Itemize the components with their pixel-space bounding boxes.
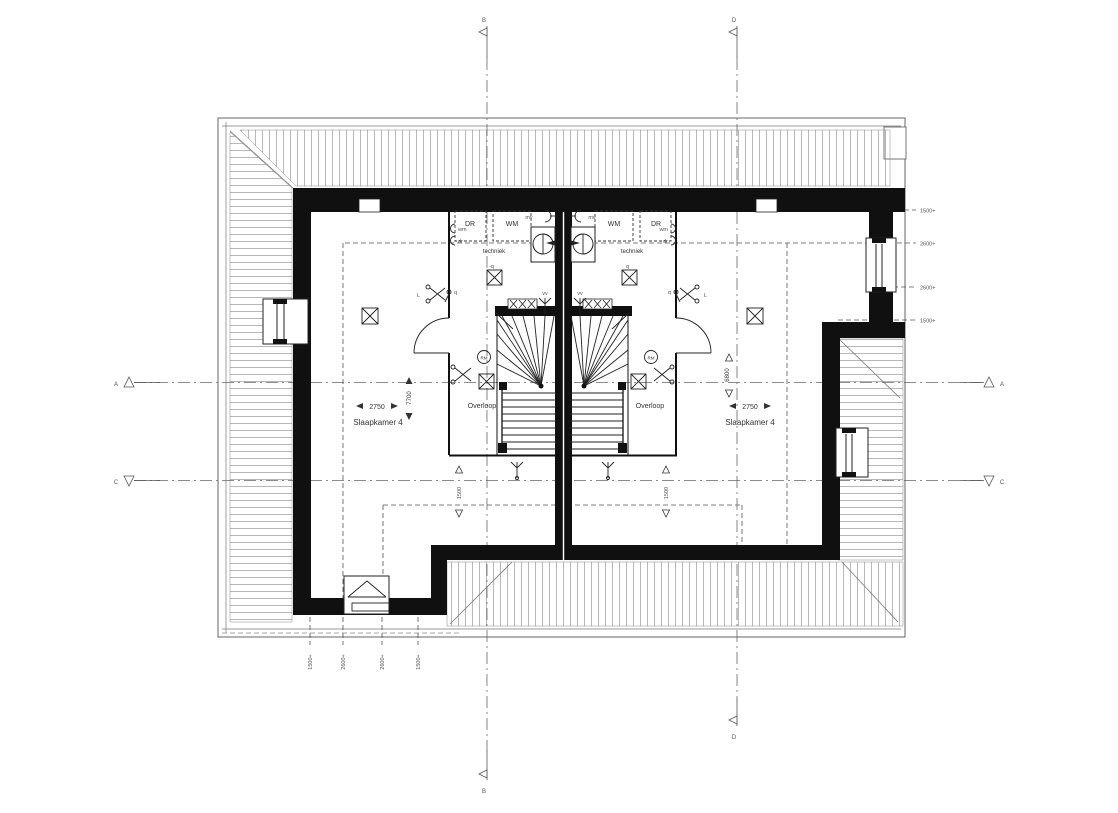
height-label: 1500+ [308,654,314,669]
height-label: 2600+ [380,654,386,669]
dr-conn-label: dr [458,239,463,245]
grid-letter: C [114,480,119,486]
height-label: 2600+ [341,654,347,669]
bedroom-depth-dim: 7700 [407,391,413,405]
tech-room-right: WM DR mv wm dr techniek [570,210,676,262]
grid-marker-c-right: C [960,476,1005,486]
window-bottom-wall [344,576,389,614]
wall-light-icon [654,365,674,384]
light-box-icon [487,270,502,285]
stair-winder-treads [497,316,554,386]
dryer-connection-icon: dr [451,236,464,245]
bedroom-depth-dim: 6800 [725,368,731,382]
grid-letter: B [482,789,486,795]
mv-label: mv [588,215,596,221]
wm-conn-label: wm [457,227,467,233]
door-left-bedroom [414,318,449,353]
tech-room-left: DR WM mv wm dr techniek [451,210,557,262]
door-right-bedroom [676,318,711,353]
stair-flight-treads [502,393,556,449]
tech-room-label: techniek [483,249,506,255]
window-left-wall [263,299,308,344]
dryer-connection-icon: dr [663,236,675,245]
light-box-icon [362,308,378,324]
light-box-icon [631,374,646,389]
grid-marker-b-top: B [479,18,487,58]
grid-letter: D [732,18,737,24]
washer-label: WM [506,221,519,228]
wall-light-icon [451,365,471,384]
bedroom-label: Slaapkamer 4 [725,418,775,427]
landing-label: Overloop [636,403,665,410]
height-label: 1500+ [920,209,935,215]
smoke-detector-icon: RM [478,351,491,364]
vent-valve-icon [602,462,614,480]
smoke-detector-icon: RM [645,351,658,364]
grid-letter: C [1000,480,1005,486]
grid-marker-d-top: D [729,18,737,58]
washer-label: WM [608,221,621,228]
dr-conn-label: dr [663,239,668,245]
window-right-lower [836,428,868,477]
height-labels-bottom: 1500+ 2600+ 2600+ 1500+ [308,654,422,669]
switch-label: -q [489,264,494,270]
height-labels-right: 1500+ 2600+ 2600+ 1500+ [920,209,935,325]
grid-letter: A [1000,382,1004,388]
landing-height-dim: 1500 [664,487,670,499]
grid-marker-c-left: C [114,476,160,486]
tech-room-label: techniek [621,249,644,255]
light-box-icon [747,308,763,324]
grid-marker-b-bottom: B [479,750,487,795]
vent-valve-label: vv [577,291,583,297]
grid-marker-a-right: A [960,377,1004,388]
vent-valve-label: vv [542,291,548,297]
light-box-icon [622,270,637,285]
height-label: 1500+ [920,319,935,325]
height-label: 1500+ [416,654,422,669]
grid-letter: B [482,18,486,24]
bedroom-width-dim: 2750 [742,404,758,411]
mv-label: mv [525,215,533,221]
grid-marker-a-left: A [114,377,160,388]
vent-grille-icon [583,299,612,309]
light-label: L [704,293,707,299]
stair-winder-treads [571,316,628,386]
height-label: 2600+ [920,286,935,292]
bedroom-label: Slaapkamer 4 [353,418,403,427]
grid-letter: A [114,382,118,388]
bedroom-width-dim: 2750 [369,404,385,411]
light-box-icon [479,374,494,389]
wall-light-icon [680,285,699,303]
switch-label: q [626,264,629,270]
height-label: 2600+ [920,242,935,248]
grid-marker-d-bottom: D [729,698,737,741]
vent-grille-icon [508,299,537,309]
smoke-detector-label: RM [481,356,488,361]
wm-conn-label: wm [658,227,668,233]
smoke-detector-label: RM [648,356,655,361]
landing-height-dim: 1500 [457,487,463,499]
light-label: L [417,293,420,299]
vent-valve-icon [511,462,523,480]
window-right-upper [866,238,896,292]
stair-flight-treads [569,393,623,449]
landing-label: Overloop [468,403,497,410]
floor-plan-drawing: DR WM mv wm dr techniek WM DR [0,0,1118,813]
switch-label: q [668,290,671,296]
wall-light-icon [426,285,445,303]
floor-plan-page: DR WM mv wm dr techniek WM DR [0,0,1118,813]
grid-letter: D [732,735,737,741]
switch-label: q [454,290,457,296]
walls [293,188,905,615]
